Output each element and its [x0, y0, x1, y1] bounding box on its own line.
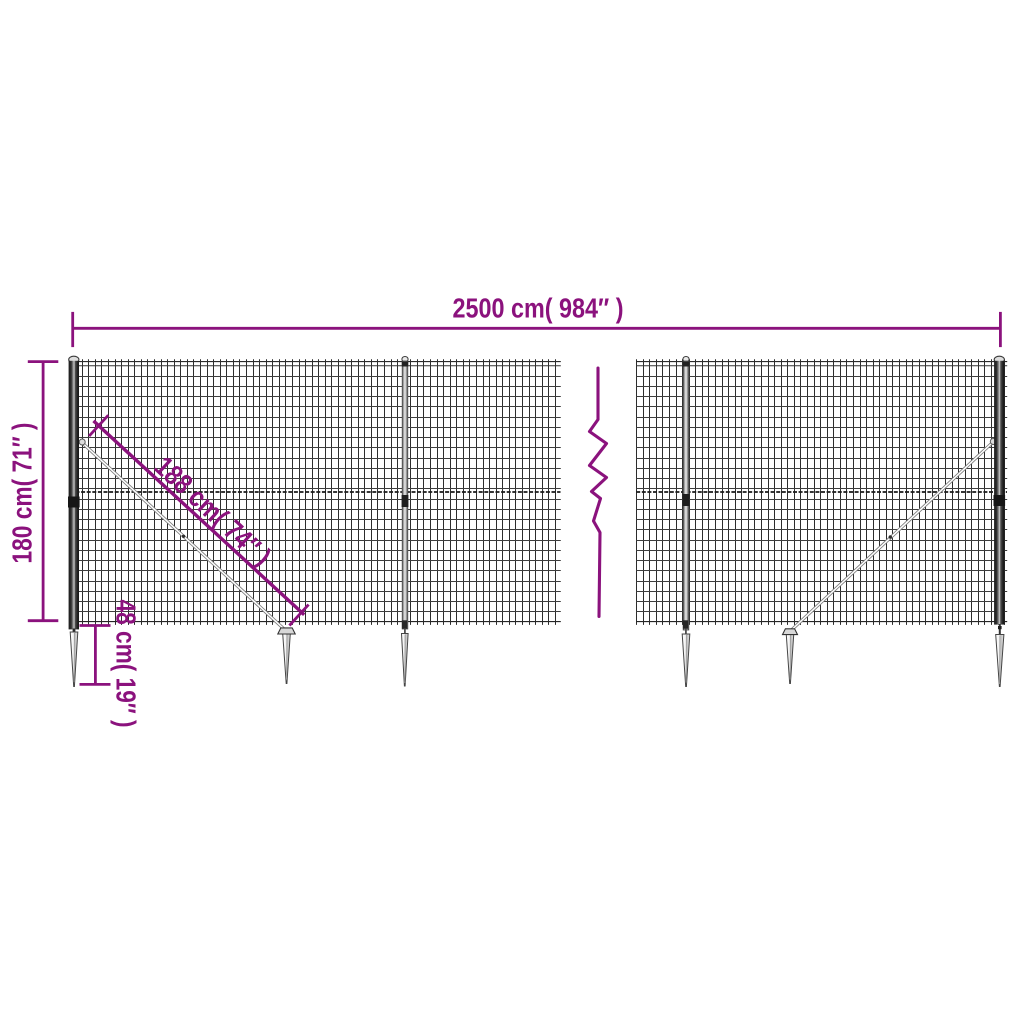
- svg-text:2500 cm( 984″ ): 2500 cm( 984″ ): [453, 293, 624, 324]
- svg-text:48 cm( 19″ ): 48 cm( 19″ ): [111, 600, 142, 728]
- svg-text:180 cm( 71″ ): 180 cm( 71″ ): [7, 423, 38, 564]
